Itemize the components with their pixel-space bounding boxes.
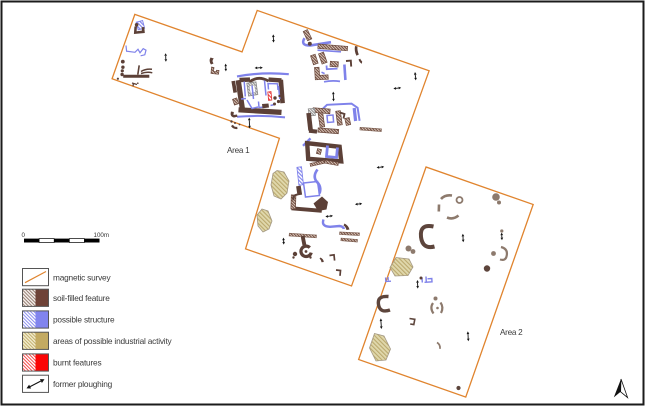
svg-text:100m: 100m xyxy=(94,232,109,239)
svg-text:magnetic survey: magnetic survey xyxy=(53,272,111,282)
svg-text:burnt features: burnt features xyxy=(53,358,101,368)
svg-text:soil-filled feature: soil-filled feature xyxy=(53,293,110,303)
svg-text:0: 0 xyxy=(22,232,26,239)
svg-text:Area 2: Area 2 xyxy=(500,328,523,337)
svg-text:Area 1: Area 1 xyxy=(227,146,250,155)
svg-text:former ploughing: former ploughing xyxy=(53,379,113,389)
svg-text:areas of possible industrial a: areas of possible industrial activity xyxy=(53,336,173,346)
svg-text:possible structure: possible structure xyxy=(53,315,115,325)
